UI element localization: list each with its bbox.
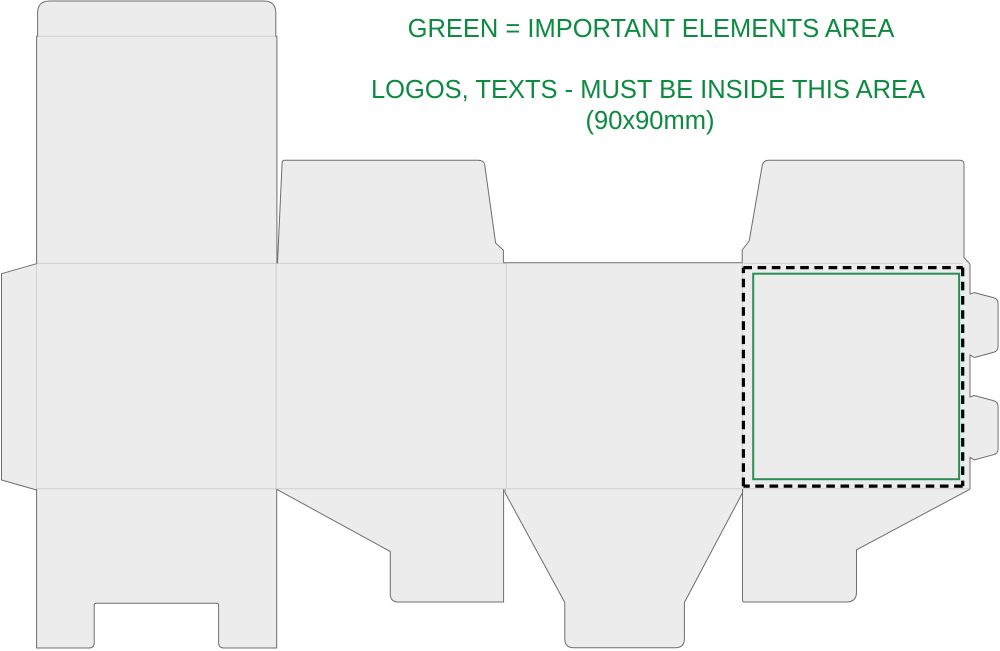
svg-text:(90x90mm): (90x90mm) <box>586 107 715 135</box>
svg-text:LOGOS, TEXTS - MUST BE INSIDE: LOGOS, TEXTS - MUST BE INSIDE THIS AREA <box>371 76 925 104</box>
svg-text:GREEN = IMPORTANT ELEMENTS ARE: GREEN = IMPORTANT ELEMENTS AREA <box>408 15 895 43</box>
